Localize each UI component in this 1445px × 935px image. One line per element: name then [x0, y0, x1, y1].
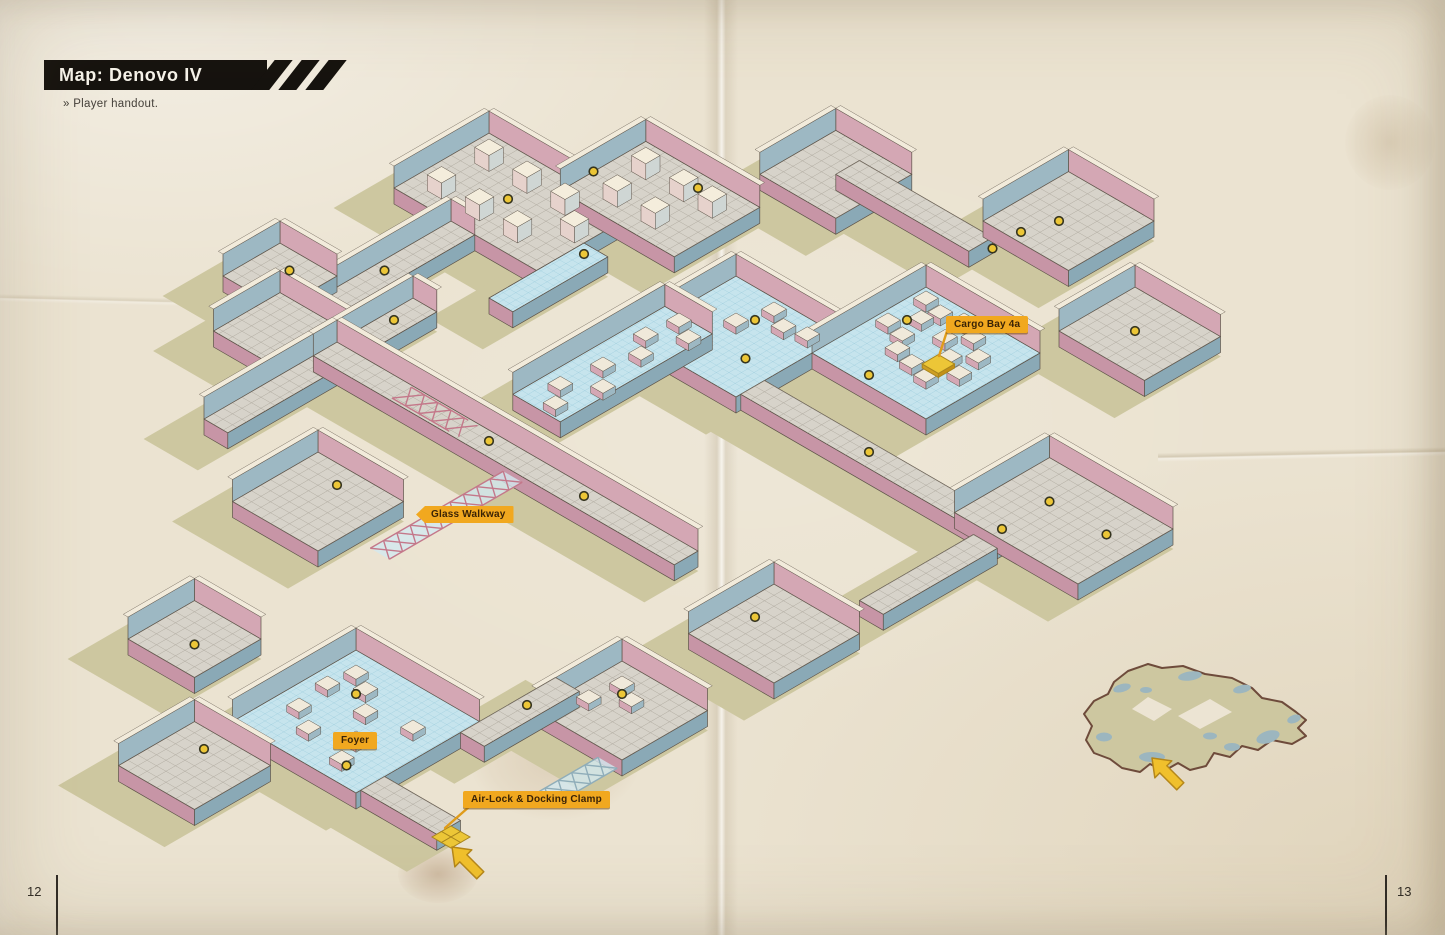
- page-number-right: 13: [1397, 884, 1411, 899]
- page-rule-left: [56, 875, 58, 935]
- map-label-airlock: Air-Lock & Docking Clamp: [463, 791, 610, 808]
- map-label-cargo-bay: Cargo Bay 4a: [946, 316, 1028, 333]
- station-overview-inset: [0, 0, 1445, 935]
- map-label-glass-walkway: Glass Walkway: [416, 506, 514, 523]
- inset-island: [1084, 664, 1306, 795]
- player-handout-page: Map: Denovo IV » Player handout. Cargo B…: [0, 0, 1445, 935]
- map-title-text: Map: Denovo IV: [59, 65, 202, 86]
- page-number-left: 12: [27, 884, 41, 899]
- map-label-foyer: Foyer: [333, 732, 377, 749]
- map-title-block: Map: Denovo IV: [44, 60, 267, 90]
- page-rule-right: [1385, 875, 1387, 935]
- page-subtitle: » Player handout.: [63, 98, 158, 110]
